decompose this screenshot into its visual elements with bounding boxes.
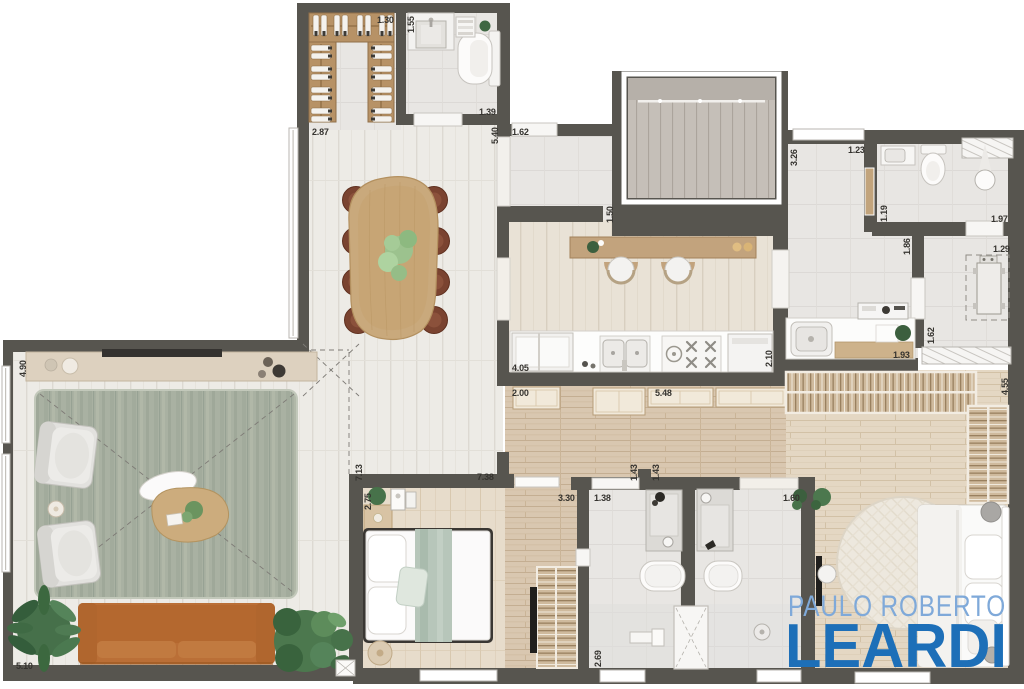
svg-text:7.38: 7.38 xyxy=(477,472,494,482)
svg-text:3.26: 3.26 xyxy=(789,149,799,166)
svg-text:1.38: 1.38 xyxy=(594,493,611,503)
svg-text:1.39: 1.39 xyxy=(479,107,496,117)
svg-text:5.40: 5.40 xyxy=(490,127,500,144)
svg-text:1.60: 1.60 xyxy=(783,493,800,503)
svg-text:1.86: 1.86 xyxy=(902,238,912,255)
svg-text:2.10: 2.10 xyxy=(764,350,774,367)
svg-text:3.30: 3.30 xyxy=(558,493,575,503)
svg-text:1.43: 1.43 xyxy=(629,464,639,481)
svg-text:LEARDI: LEARDI xyxy=(785,612,1007,681)
svg-text:5.10: 5.10 xyxy=(16,661,33,671)
svg-text:1.62: 1.62 xyxy=(512,127,529,137)
svg-text:4.90: 4.90 xyxy=(18,360,28,377)
svg-text:1.62: 1.62 xyxy=(926,327,936,344)
svg-text:7.13: 7.13 xyxy=(354,464,364,481)
svg-text:1.23: 1.23 xyxy=(848,145,865,155)
svg-text:1.50: 1.50 xyxy=(605,206,615,223)
svg-text:5.48: 5.48 xyxy=(655,388,672,398)
svg-text:1.29: 1.29 xyxy=(993,244,1010,254)
svg-text:2.75: 2.75 xyxy=(363,493,373,510)
svg-text:4.55: 4.55 xyxy=(1000,378,1010,395)
svg-text:1.55: 1.55 xyxy=(406,16,416,33)
svg-text:1.43: 1.43 xyxy=(651,464,661,481)
svg-text:1.97: 1.97 xyxy=(991,214,1008,224)
svg-text:1.30: 1.30 xyxy=(377,15,394,25)
svg-text:2.87: 2.87 xyxy=(312,127,329,137)
svg-text:1.93: 1.93 xyxy=(893,350,910,360)
svg-text:2.00: 2.00 xyxy=(512,388,529,398)
svg-text:1.19: 1.19 xyxy=(879,205,889,222)
svg-text:2.69: 2.69 xyxy=(593,650,603,667)
svg-text:4.05: 4.05 xyxy=(512,363,529,373)
